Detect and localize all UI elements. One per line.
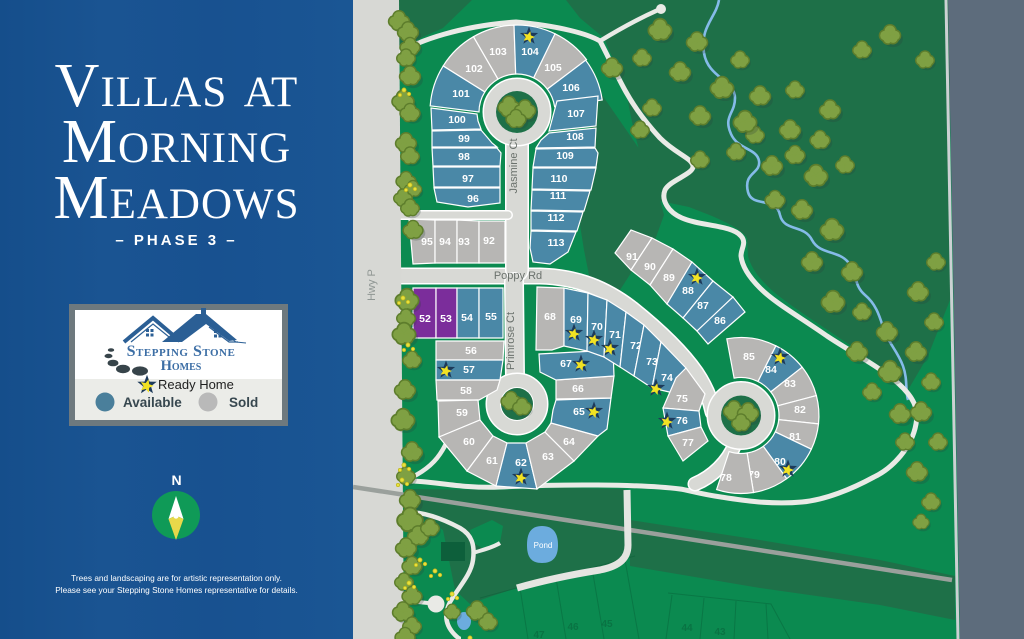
svg-text:97: 97 [462,173,474,185]
svg-text:Jasmine Ct: Jasmine Ct [508,138,520,193]
svg-text:61: 61 [486,455,498,467]
svg-text:86: 86 [714,315,726,327]
svg-text:64: 64 [563,436,575,448]
svg-text:70: 70 [591,321,603,333]
svg-text:59: 59 [456,407,468,419]
svg-text:84: 84 [765,364,777,376]
svg-text:77: 77 [682,437,694,449]
svg-text:65: 65 [573,406,585,418]
svg-text:47: 47 [533,630,545,639]
svg-text:57: 57 [463,364,475,376]
svg-text:100: 100 [448,114,466,126]
svg-text:90: 90 [644,261,656,273]
svg-text:62: 62 [515,457,527,469]
svg-text:67: 67 [560,358,572,370]
svg-text:78: 78 [720,472,732,484]
svg-text:94: 94 [439,236,451,248]
svg-text:44: 44 [681,623,693,634]
svg-text:60: 60 [463,436,475,448]
svg-text:58: 58 [460,385,472,397]
svg-text:83: 83 [784,378,796,390]
svg-text:102: 102 [465,63,483,75]
svg-text:85: 85 [743,351,755,363]
svg-text:52: 52 [419,313,431,325]
svg-text:Sold: Sold [229,395,258,410]
svg-text:112: 112 [548,212,565,224]
svg-text:Ready Home: Ready Home [158,377,234,392]
svg-text:101: 101 [452,88,470,100]
svg-text:93: 93 [458,236,470,248]
svg-text:74: 74 [661,372,673,384]
svg-text:75: 75 [676,393,688,405]
svg-text:68: 68 [544,311,556,323]
svg-text:108: 108 [566,131,584,143]
svg-text:43: 43 [714,627,726,638]
svg-text:92: 92 [483,235,495,247]
svg-text:98: 98 [458,151,470,163]
svg-text:104: 104 [521,46,539,58]
svg-text:Poppy Rd: Poppy Rd [494,270,542,282]
svg-text:45: 45 [601,619,613,630]
svg-text:63: 63 [542,451,554,463]
svg-text:Primrose Ct: Primrose Ct [505,312,517,370]
svg-text:99: 99 [458,133,470,145]
svg-text:110: 110 [551,173,568,185]
svg-text:Hwy P: Hwy P [366,269,378,301]
svg-text:55: 55 [485,311,497,323]
svg-text:69: 69 [570,314,582,326]
svg-text:109: 109 [556,150,574,162]
svg-text:89: 89 [663,272,675,284]
svg-text:107: 107 [567,108,585,120]
svg-text:87: 87 [697,300,709,312]
svg-text:54: 54 [461,312,473,324]
svg-text:76: 76 [676,415,688,427]
svg-text:96: 96 [467,193,479,205]
svg-text:106: 106 [562,82,580,94]
svg-text:71: 71 [609,329,621,341]
svg-text:105: 105 [544,62,562,74]
svg-text:Homes: Homes [161,358,202,374]
svg-text:111: 111 [550,190,567,202]
svg-text:82: 82 [794,404,806,416]
svg-text:113: 113 [548,237,565,249]
svg-text:46: 46 [567,622,579,633]
svg-text:88: 88 [682,285,694,297]
svg-text:56: 56 [465,345,477,357]
svg-text:103: 103 [489,46,507,58]
svg-text:66: 66 [572,383,584,395]
svg-text:53: 53 [440,313,452,325]
svg-text:Pond: Pond [534,541,553,550]
svg-text:Available: Available [123,395,182,410]
